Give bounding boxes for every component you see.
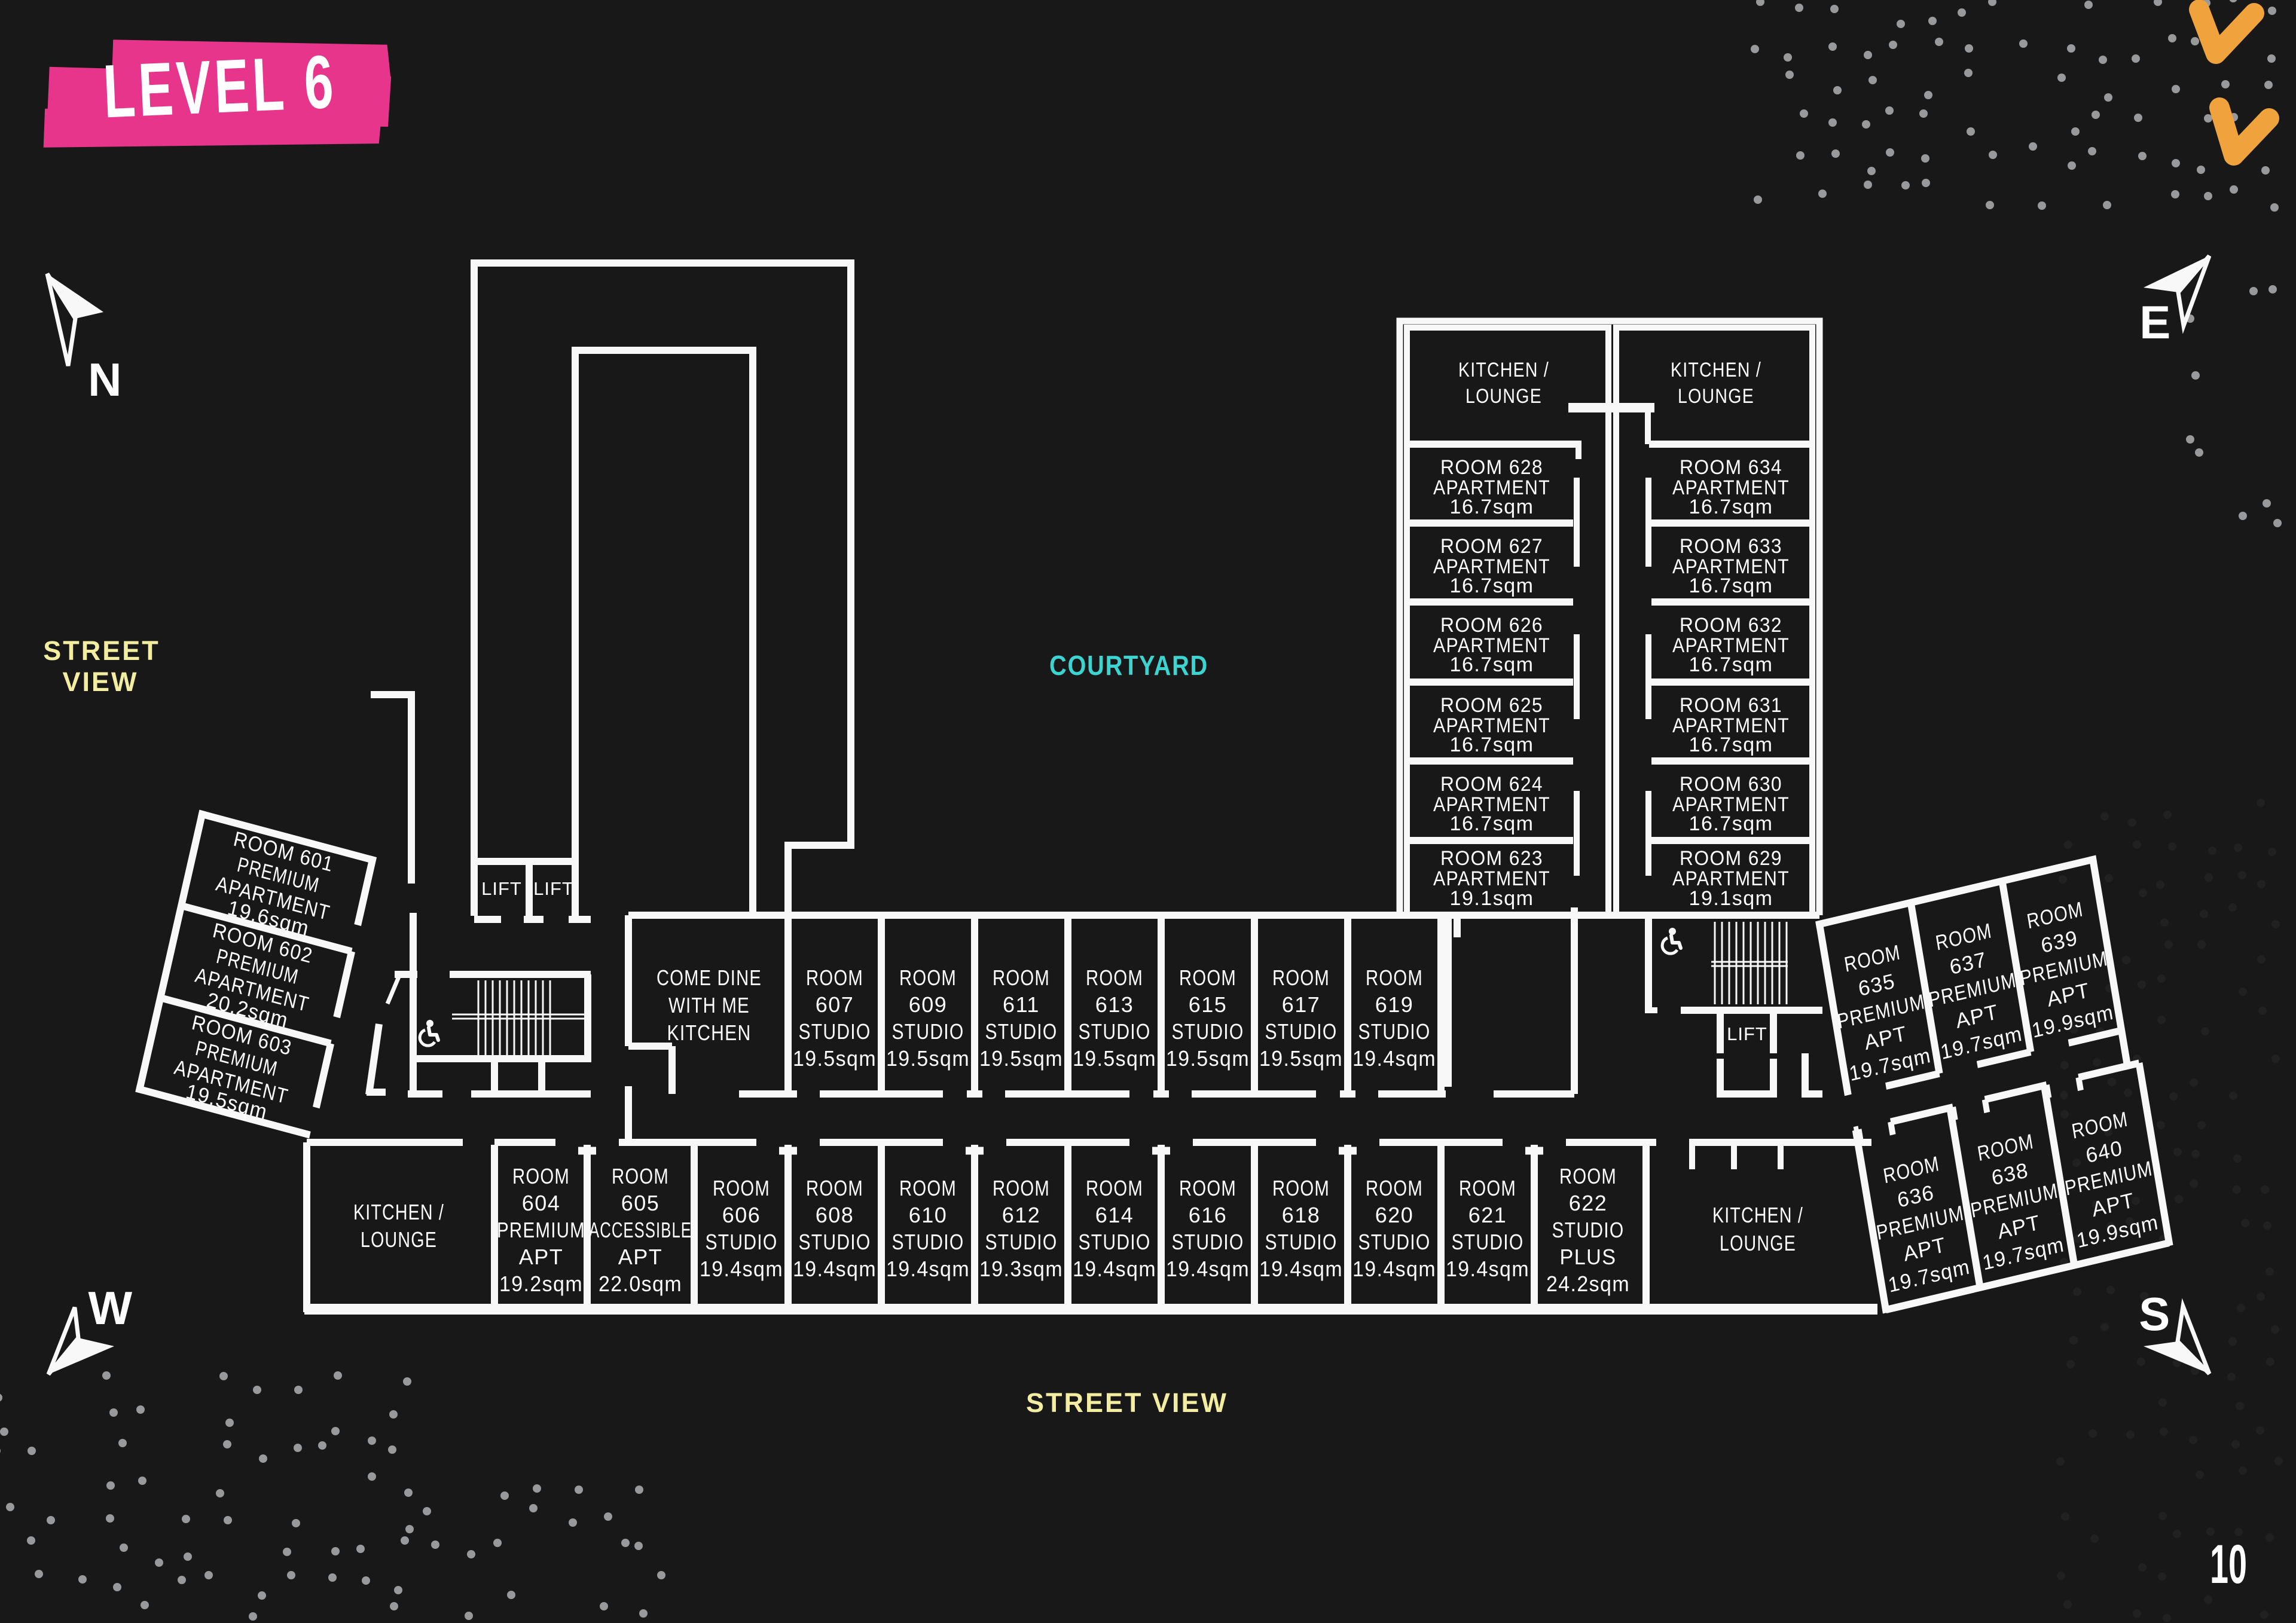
- svg-text:ROOM 634: ROOM 634: [1680, 456, 1782, 479]
- svg-text:STUDIO: STUDIO: [1452, 1230, 1524, 1254]
- svg-text:ROOM 632: ROOM 632: [1680, 614, 1782, 637]
- svg-text:ROOM 627: ROOM 627: [1440, 535, 1543, 558]
- svg-text:19.1sqm: 19.1sqm: [1689, 887, 1773, 910]
- svg-text:STUDIO: STUDIO: [1172, 1019, 1244, 1044]
- svg-text:STUDIO: STUDIO: [799, 1230, 871, 1254]
- svg-text:LOUNGE: LOUNGE: [1720, 1231, 1796, 1255]
- svg-text:KITCHEN /: KITCHEN /: [1458, 359, 1549, 381]
- svg-text:STUDIO: STUDIO: [985, 1019, 1058, 1044]
- svg-text:604: 604: [522, 1191, 561, 1215]
- svg-text:ROOM: ROOM: [713, 1176, 770, 1200]
- svg-text:ROOM: ROOM: [1086, 965, 1143, 990]
- svg-text:613: 613: [1095, 992, 1134, 1017]
- svg-text:611: 611: [1003, 992, 1040, 1017]
- svg-text:STUDIO: STUDIO: [706, 1230, 778, 1254]
- svg-text:16.7sqm: 16.7sqm: [1689, 812, 1773, 835]
- svg-text:24.2sqm: 24.2sqm: [1546, 1271, 1630, 1296]
- svg-text:19.5sqm: 19.5sqm: [1073, 1046, 1156, 1071]
- svg-text:16.7sqm: 16.7sqm: [1450, 496, 1534, 518]
- svg-text:S: S: [2139, 1288, 2171, 1340]
- svg-text:ROOM: ROOM: [1272, 1176, 1330, 1200]
- svg-text:19.5sqm: 19.5sqm: [1166, 1046, 1250, 1071]
- svg-text:620: 620: [1375, 1203, 1414, 1227]
- svg-text:615: 615: [1189, 992, 1228, 1017]
- svg-text:ROOM 633: ROOM 633: [1680, 535, 1782, 558]
- svg-text:16.7sqm: 16.7sqm: [1689, 653, 1773, 676]
- svg-text:616: 616: [1189, 1203, 1228, 1227]
- svg-text:E: E: [2139, 296, 2172, 349]
- svg-text:ROOM: ROOM: [806, 1176, 863, 1200]
- svg-text:610: 610: [909, 1203, 948, 1227]
- svg-text:STUDIO: STUDIO: [1265, 1019, 1338, 1044]
- svg-text:ROOM 629: ROOM 629: [1680, 847, 1782, 870]
- svg-text:16.7sqm: 16.7sqm: [1450, 733, 1534, 756]
- svg-text:612: 612: [1002, 1203, 1041, 1227]
- svg-text:16.7sqm: 16.7sqm: [1689, 733, 1773, 756]
- svg-text:ACCESSIBLE: ACCESSIBLE: [589, 1218, 692, 1242]
- svg-text:STREET: STREET: [43, 635, 160, 666]
- svg-text:617: 617: [1282, 992, 1321, 1017]
- svg-text:ROOM 624: ROOM 624: [1440, 773, 1543, 796]
- svg-text:19.3sqm: 19.3sqm: [979, 1257, 1063, 1281]
- svg-text:19.4sqm: 19.4sqm: [1073, 1257, 1156, 1281]
- svg-text:16.7sqm: 16.7sqm: [1689, 496, 1773, 518]
- svg-text:STUDIO: STUDIO: [1552, 1218, 1625, 1242]
- svg-text:LOUNGE: LOUNGE: [361, 1227, 437, 1252]
- svg-text:19.4sqm: 19.4sqm: [1259, 1257, 1343, 1281]
- svg-text:ROOM: ROOM: [1366, 965, 1423, 990]
- svg-text:ROOM: ROOM: [899, 1176, 957, 1200]
- svg-text:19.4sqm: 19.4sqm: [1352, 1046, 1436, 1071]
- svg-text:STUDIO: STUDIO: [1172, 1230, 1244, 1254]
- svg-text:19.4sqm: 19.4sqm: [1166, 1257, 1250, 1281]
- svg-text:ROOM: ROOM: [1179, 1176, 1236, 1200]
- svg-text:19.2sqm: 19.2sqm: [499, 1271, 583, 1296]
- svg-text:STUDIO: STUDIO: [892, 1019, 964, 1044]
- svg-text:STUDIO: STUDIO: [1358, 1019, 1431, 1044]
- svg-text:16.7sqm: 16.7sqm: [1450, 812, 1534, 835]
- svg-text:ROOM 625: ROOM 625: [1440, 694, 1543, 717]
- svg-text:ROOM: ROOM: [806, 965, 863, 990]
- svg-text:LEVEL 6: LEVEL 6: [102, 39, 338, 134]
- svg-text:621: 621: [1468, 1203, 1507, 1227]
- svg-text:618: 618: [1282, 1203, 1321, 1227]
- svg-text:N: N: [88, 353, 123, 406]
- svg-text:W: W: [88, 1282, 133, 1334]
- svg-text:19.4sqm: 19.4sqm: [1446, 1257, 1529, 1281]
- svg-text:19.5sqm: 19.5sqm: [793, 1046, 877, 1071]
- svg-text:LOUNGE: LOUNGE: [1465, 385, 1542, 408]
- svg-text:22.0sqm: 22.0sqm: [599, 1271, 682, 1296]
- svg-text:19.4sqm: 19.4sqm: [886, 1257, 970, 1281]
- svg-text:PREMIUM: PREMIUM: [497, 1218, 585, 1242]
- svg-text:606: 606: [722, 1203, 761, 1227]
- svg-text:ROOM 630: ROOM 630: [1680, 773, 1782, 796]
- svg-text:ROOM: ROOM: [899, 965, 957, 990]
- svg-text:19.1sqm: 19.1sqm: [1450, 887, 1534, 910]
- svg-text:ROOM: ROOM: [993, 1176, 1050, 1200]
- svg-text:LIFT: LIFT: [533, 878, 574, 899]
- svg-text:ROOM: ROOM: [512, 1164, 570, 1188]
- svg-text:VIEW: VIEW: [62, 667, 138, 697]
- svg-text:619: 619: [1375, 992, 1414, 1017]
- svg-text:ROOM 631: ROOM 631: [1680, 694, 1782, 717]
- svg-text:ROOM: ROOM: [612, 1164, 669, 1188]
- svg-text:19.4sqm: 19.4sqm: [793, 1257, 877, 1281]
- svg-text:16.7sqm: 16.7sqm: [1450, 653, 1534, 676]
- svg-text:STUDIO: STUDIO: [799, 1019, 871, 1044]
- svg-text:LIFT: LIFT: [1727, 1023, 1767, 1044]
- svg-text:LOUNGE: LOUNGE: [1678, 385, 1754, 408]
- svg-text:608: 608: [816, 1203, 854, 1227]
- svg-text:STREET VIEW: STREET VIEW: [1026, 1387, 1228, 1418]
- svg-text:19.5sqm: 19.5sqm: [979, 1046, 1063, 1071]
- svg-text:607: 607: [816, 992, 854, 1017]
- svg-text:16.7sqm: 16.7sqm: [1450, 574, 1534, 597]
- svg-text:KITCHEN: KITCHEN: [667, 1020, 752, 1045]
- svg-text:ROOM: ROOM: [1272, 965, 1330, 990]
- svg-text:622: 622: [1569, 1191, 1608, 1215]
- svg-text:19.5sqm: 19.5sqm: [1259, 1046, 1343, 1071]
- svg-text:APT: APT: [618, 1245, 663, 1269]
- svg-text:ROOM: ROOM: [1366, 1176, 1423, 1200]
- svg-text:KITCHEN /: KITCHEN /: [1671, 359, 1761, 381]
- svg-text:STUDIO: STUDIO: [892, 1230, 964, 1254]
- svg-text:APT: APT: [519, 1245, 564, 1269]
- svg-text:STUDIO: STUDIO: [985, 1230, 1058, 1254]
- svg-text:KITCHEN /: KITCHEN /: [353, 1200, 444, 1224]
- svg-text:COME DINE: COME DINE: [657, 965, 762, 990]
- svg-text:STUDIO: STUDIO: [1358, 1230, 1431, 1254]
- svg-text:ROOM: ROOM: [1179, 965, 1236, 990]
- svg-text:WITH ME: WITH ME: [668, 993, 750, 1017]
- svg-text:609: 609: [909, 992, 948, 1017]
- svg-text:16.7sqm: 16.7sqm: [1689, 574, 1773, 597]
- svg-text:19.4sqm: 19.4sqm: [700, 1257, 783, 1281]
- svg-text:605: 605: [621, 1191, 660, 1215]
- svg-text:10: 10: [2210, 1534, 2247, 1595]
- svg-text:19.4sqm: 19.4sqm: [1352, 1257, 1436, 1281]
- svg-text:ROOM: ROOM: [1559, 1164, 1617, 1188]
- svg-text:STUDIO: STUDIO: [1079, 1230, 1151, 1254]
- svg-text:ROOM 623: ROOM 623: [1440, 847, 1543, 870]
- svg-text:KITCHEN /: KITCHEN /: [1712, 1203, 1803, 1227]
- svg-text:ROOM: ROOM: [993, 965, 1050, 990]
- svg-text:ROOM: ROOM: [1086, 1176, 1143, 1200]
- svg-text:ROOM 628: ROOM 628: [1440, 456, 1543, 479]
- svg-text:STUDIO: STUDIO: [1265, 1230, 1338, 1254]
- svg-text:614: 614: [1095, 1203, 1134, 1227]
- svg-text:PLUS: PLUS: [1560, 1245, 1617, 1269]
- svg-text:STUDIO: STUDIO: [1079, 1019, 1151, 1044]
- svg-text:ROOM: ROOM: [1459, 1176, 1516, 1200]
- svg-text:LIFT: LIFT: [481, 878, 522, 899]
- svg-text:ROOM 626: ROOM 626: [1440, 614, 1543, 637]
- svg-text:COURTYARD: COURTYARD: [1049, 650, 1208, 681]
- svg-text:19.5sqm: 19.5sqm: [886, 1046, 970, 1071]
